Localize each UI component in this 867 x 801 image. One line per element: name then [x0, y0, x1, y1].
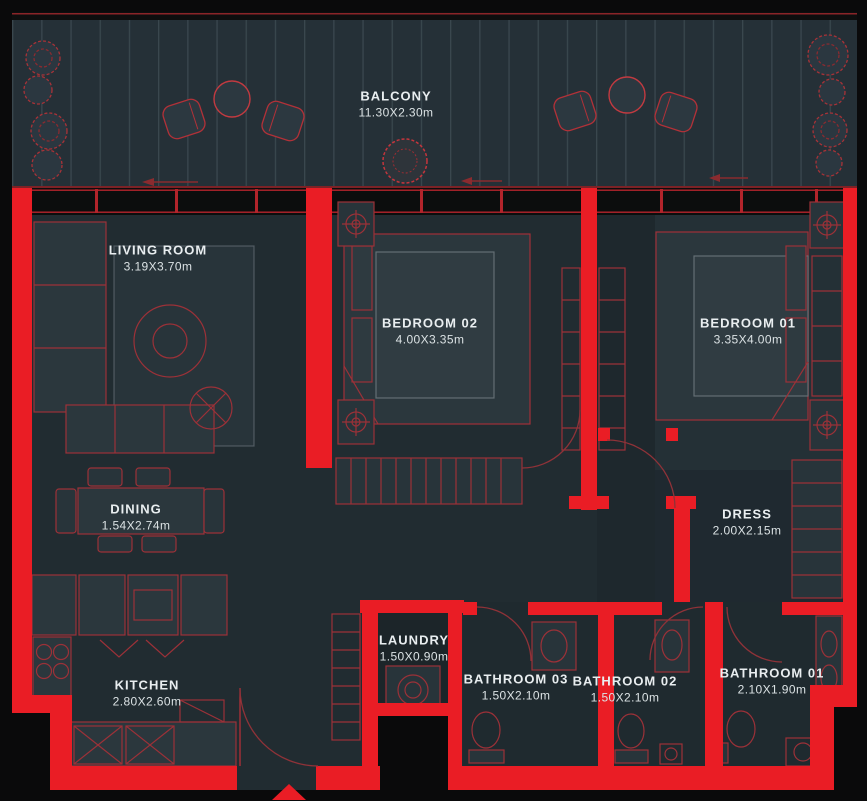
room-label-kitchen: KITCHEN 2.80X2.60m [113, 678, 182, 709]
bush-icon [383, 139, 427, 183]
room-dims: 11.30X2.30m [359, 106, 434, 120]
room-dims: 3.19X3.70m [124, 260, 193, 274]
room-name: BEDROOM 02 [382, 316, 478, 331]
room-label-bathroom-01: BATHROOM 01 2.10X1.90m [720, 666, 825, 697]
balcony-area [12, 12, 857, 188]
room-name: BATHROOM 03 [464, 672, 569, 687]
stove [33, 637, 71, 697]
table-icon [609, 77, 645, 113]
room-name: LIVING ROOM [109, 243, 207, 258]
room-label-laundry: LAUNDRY 1.50X0.90m [379, 633, 449, 664]
room-name: BATHROOM 02 [573, 674, 678, 689]
room-label-bathroom-03: BATHROOM 03 1.50X2.10m [464, 672, 569, 703]
room-label-bathroom-02: BATHROOM 02 1.50X2.10m [573, 674, 678, 705]
room-label-balcony: BALCONY 11.30X2.30m [359, 89, 434, 120]
balcony-deck [12, 20, 857, 187]
room-dims: 4.00X3.35m [396, 333, 465, 347]
room-dims: 1.50X2.10m [591, 691, 660, 705]
facade-band [12, 188, 857, 215]
wardrobe-row [336, 458, 522, 504]
room-label-dress: DRESS 2.00X2.15m [713, 507, 782, 538]
room-label-living-room: LIVING ROOM 3.19X3.70m [109, 243, 207, 274]
floor-plan: BALCONY 11.30X2.30m LIVING ROOM 3.19X3.7… [0, 0, 867, 801]
room-name: DRESS [722, 507, 772, 522]
table-icon [214, 81, 250, 117]
room-dims: 2.10X1.90m [738, 683, 807, 697]
room-dims: 2.00X2.15m [713, 524, 782, 538]
room-dims: 1.50X0.90m [380, 650, 449, 664]
room-dims: 2.80X2.60m [113, 695, 182, 709]
room-name: BALCONY [360, 89, 431, 104]
room-dims: 1.54X2.74m [102, 519, 171, 533]
room-label-bedroom-01: BEDROOM 01 3.35X4.00m [700, 316, 796, 347]
room-name: LAUNDRY [379, 633, 449, 648]
dress-closet [792, 460, 842, 598]
room-dims: 1.50X2.10m [482, 689, 551, 703]
room-name: DINING [110, 502, 162, 517]
room-name: BATHROOM 01 [720, 666, 825, 681]
room-dims: 3.35X4.00m [714, 333, 783, 347]
room-name: BEDROOM 01 [700, 316, 796, 331]
room-name: KITCHEN [115, 678, 180, 693]
room-label-dining: DINING 1.54X2.74m [102, 502, 171, 533]
sink-vanity [532, 622, 576, 670]
room-label-bedroom-02: BEDROOM 02 4.00X3.35m [382, 316, 478, 347]
